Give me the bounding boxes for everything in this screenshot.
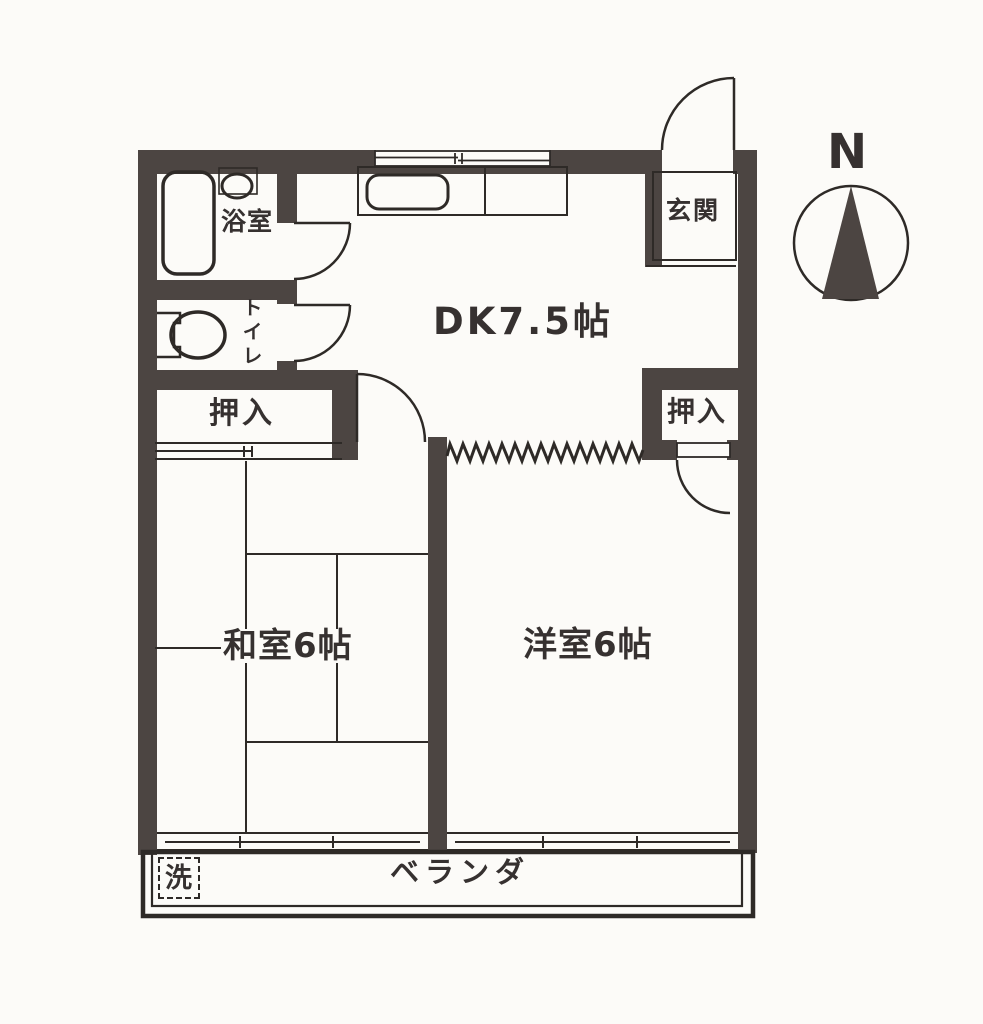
window-western-room [447, 833, 738, 850]
closet-sliding-doors [155, 443, 342, 459]
compass-icon [794, 186, 908, 300]
wall-segment [277, 281, 297, 304]
compass-north-label: N [827, 128, 867, 176]
kitchen-window [375, 151, 550, 166]
door-arc-entrance [662, 78, 734, 150]
wall-segment [155, 280, 297, 300]
wall-segment [428, 437, 447, 460]
door-arc-bathroom [294, 223, 350, 279]
kitchen-sink-icon [367, 175, 448, 209]
wall-segment [642, 440, 677, 460]
toilet-fixture [157, 312, 225, 358]
room-label-dining-kitchen: DK7.5帖 [433, 303, 613, 340]
walls [138, 150, 757, 855]
room-label-closet-right: 押入 [667, 398, 727, 426]
wall-segment [738, 150, 757, 853]
window-japanese-room [157, 833, 428, 850]
wall-segment [277, 166, 297, 223]
door-arc-japanese-room [357, 374, 425, 442]
toilet-bowl-icon [171, 312, 225, 358]
accordion-partition-icon [447, 444, 643, 461]
north-arrow-icon [822, 186, 879, 299]
washing-machine-box: 洗 [158, 857, 200, 899]
wall-segment [277, 361, 297, 390]
room-label-veranda: ベランダ [390, 858, 530, 887]
kitchen-counter [358, 167, 567, 215]
wall-segment [428, 460, 447, 850]
floor-plan-page: 浴室 トイレ 押入 押入 玄関 DK7.5帖 和室6帖 洋室6帖 ベランダ 洗 … [0, 0, 983, 1024]
room-label-closet-upper: 押入 [209, 399, 275, 429]
wall-segment [332, 390, 358, 460]
wall-segment [155, 370, 358, 390]
room-label-japanese-room: 和室6帖 [221, 629, 355, 663]
room-label-western-room: 洋室6帖 [523, 628, 653, 662]
room-label-toilet: トイレ [241, 297, 261, 369]
bathtub-icon [163, 172, 214, 274]
room-label-bathroom: 浴室 [221, 209, 273, 234]
door-arc-toilet [294, 305, 350, 361]
wall-segment [138, 150, 157, 855]
door-arc-right-closet [677, 443, 730, 513]
room-label-entrance: 玄関 [666, 198, 720, 223]
